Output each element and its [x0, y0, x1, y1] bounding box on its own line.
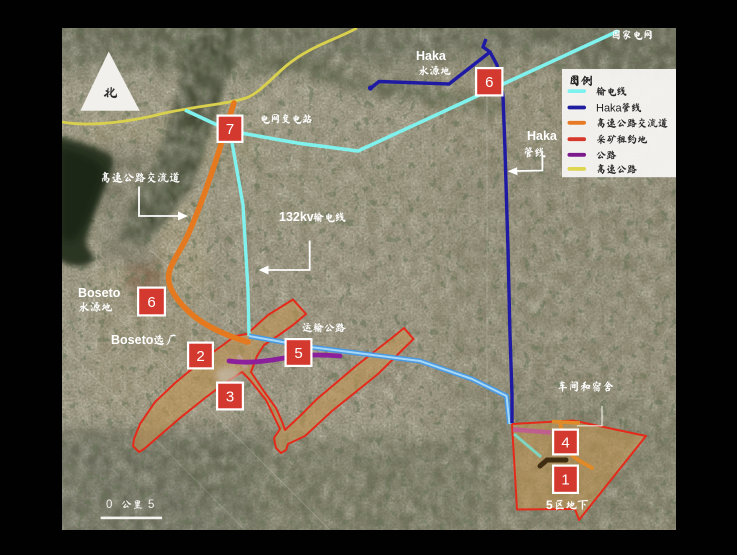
svg-text:4: 4 — [561, 434, 569, 451]
svg-text:Boseto: Boseto — [111, 333, 154, 347]
svg-text:7: 7 — [226, 121, 234, 138]
svg-text:5: 5 — [148, 499, 154, 511]
svg-text:Haka: Haka — [527, 129, 558, 143]
svg-text:3: 3 — [226, 388, 234, 405]
svg-text:6: 6 — [147, 294, 155, 311]
svg-text:5: 5 — [546, 498, 553, 512]
svg-text:1: 1 — [561, 472, 569, 489]
svg-text:5: 5 — [294, 345, 302, 362]
svg-text:Haka: Haka — [416, 49, 447, 63]
svg-text:Haka: Haka — [596, 102, 623, 114]
svg-text:6: 6 — [485, 74, 493, 91]
svg-text:Boseto: Boseto — [78, 286, 121, 300]
svg-text:2: 2 — [196, 348, 204, 365]
svg-text:0: 0 — [106, 499, 112, 511]
svg-text:132kv: 132kv — [279, 210, 314, 224]
